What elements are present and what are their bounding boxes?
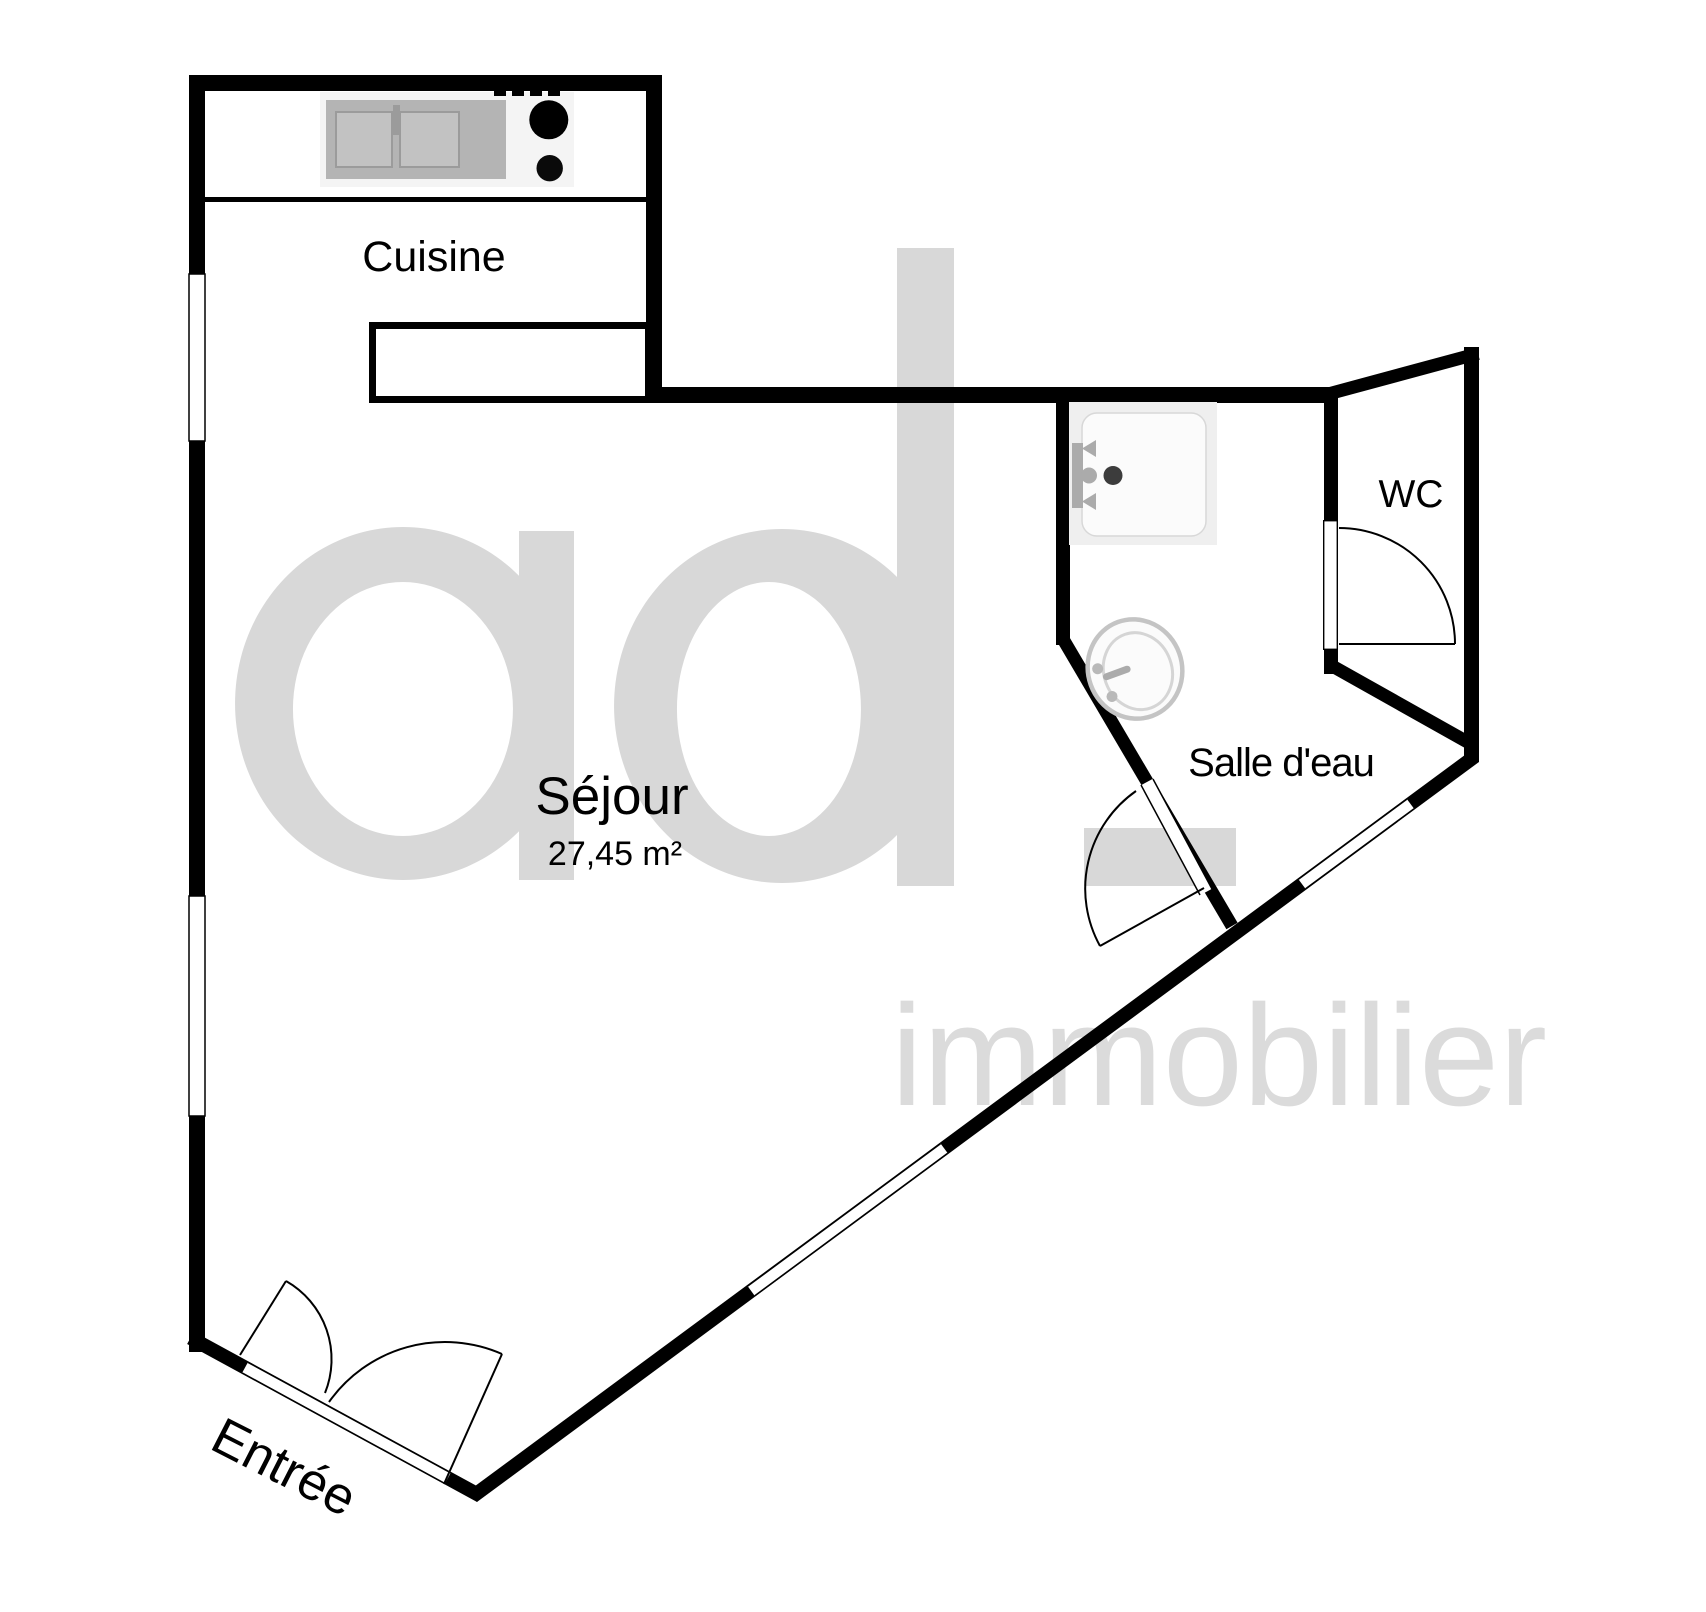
svg-text:Salle d'eau: Salle d'eau xyxy=(1188,741,1374,785)
svg-text:Cuisine: Cuisine xyxy=(362,233,505,281)
svg-text:Séjour: Séjour xyxy=(535,767,688,826)
svg-text:27,45 m²: 27,45 m² xyxy=(548,835,682,873)
svg-text:WC: WC xyxy=(1379,473,1444,516)
